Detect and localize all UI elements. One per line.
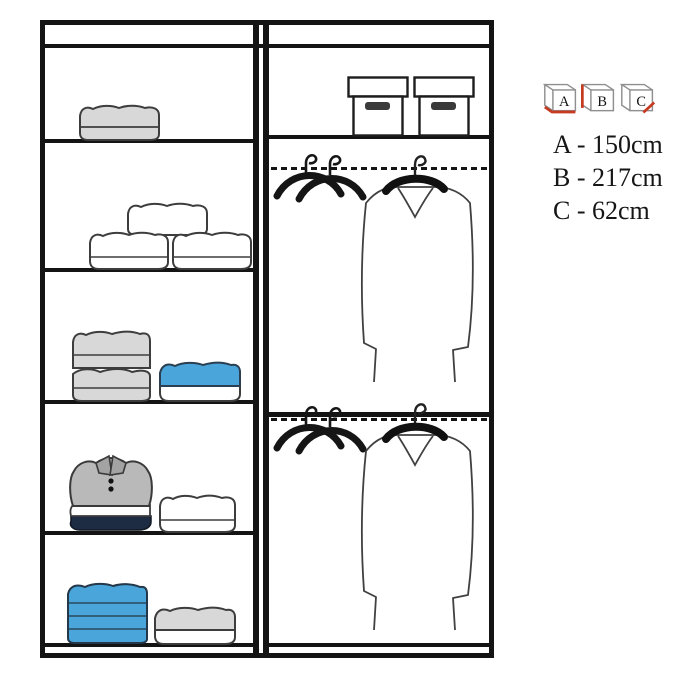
folded-blanket-stack-icon xyxy=(70,330,153,402)
center-divider-left-panel xyxy=(253,25,259,653)
dimension-box-a-icon: A xyxy=(543,82,579,115)
folded-pillow-icon xyxy=(87,230,171,270)
base-line-right xyxy=(269,643,489,647)
svg-text:C: C xyxy=(636,94,646,110)
folded-blanket-icon xyxy=(77,103,162,141)
polo-shirt-stack-icon xyxy=(66,450,155,532)
hanging-garment-icon xyxy=(356,151,480,385)
storage-box-icon xyxy=(347,76,409,137)
folded-stack-blue-icon xyxy=(65,581,150,644)
folded-item-grey-icon xyxy=(152,605,238,645)
hanging-garment-icon xyxy=(356,399,480,633)
folded-pillow-icon xyxy=(170,230,254,270)
svg-text:B: B xyxy=(597,94,607,110)
svg-text:A: A xyxy=(559,94,570,110)
dimension-box-c-icon: C xyxy=(620,82,656,115)
folded-item-white-icon xyxy=(157,493,238,533)
dimension-label-a: A - 150cm xyxy=(553,128,663,161)
dimension-box-b-icon: B xyxy=(581,82,617,115)
dimension-label-c: C - 62cm xyxy=(553,194,663,227)
storage-box-icon xyxy=(413,76,475,137)
dimension-label-b: B - 217cm xyxy=(553,161,663,194)
folded-item-blue-icon xyxy=(157,360,243,402)
center-divider-right-panel xyxy=(263,25,269,653)
wardrobe-layout-diagram: A B C A - 150cm B - 217cm C - 62cm xyxy=(0,0,700,700)
dimension-list: A - 150cm B - 217cm C - 62cm xyxy=(553,128,663,227)
